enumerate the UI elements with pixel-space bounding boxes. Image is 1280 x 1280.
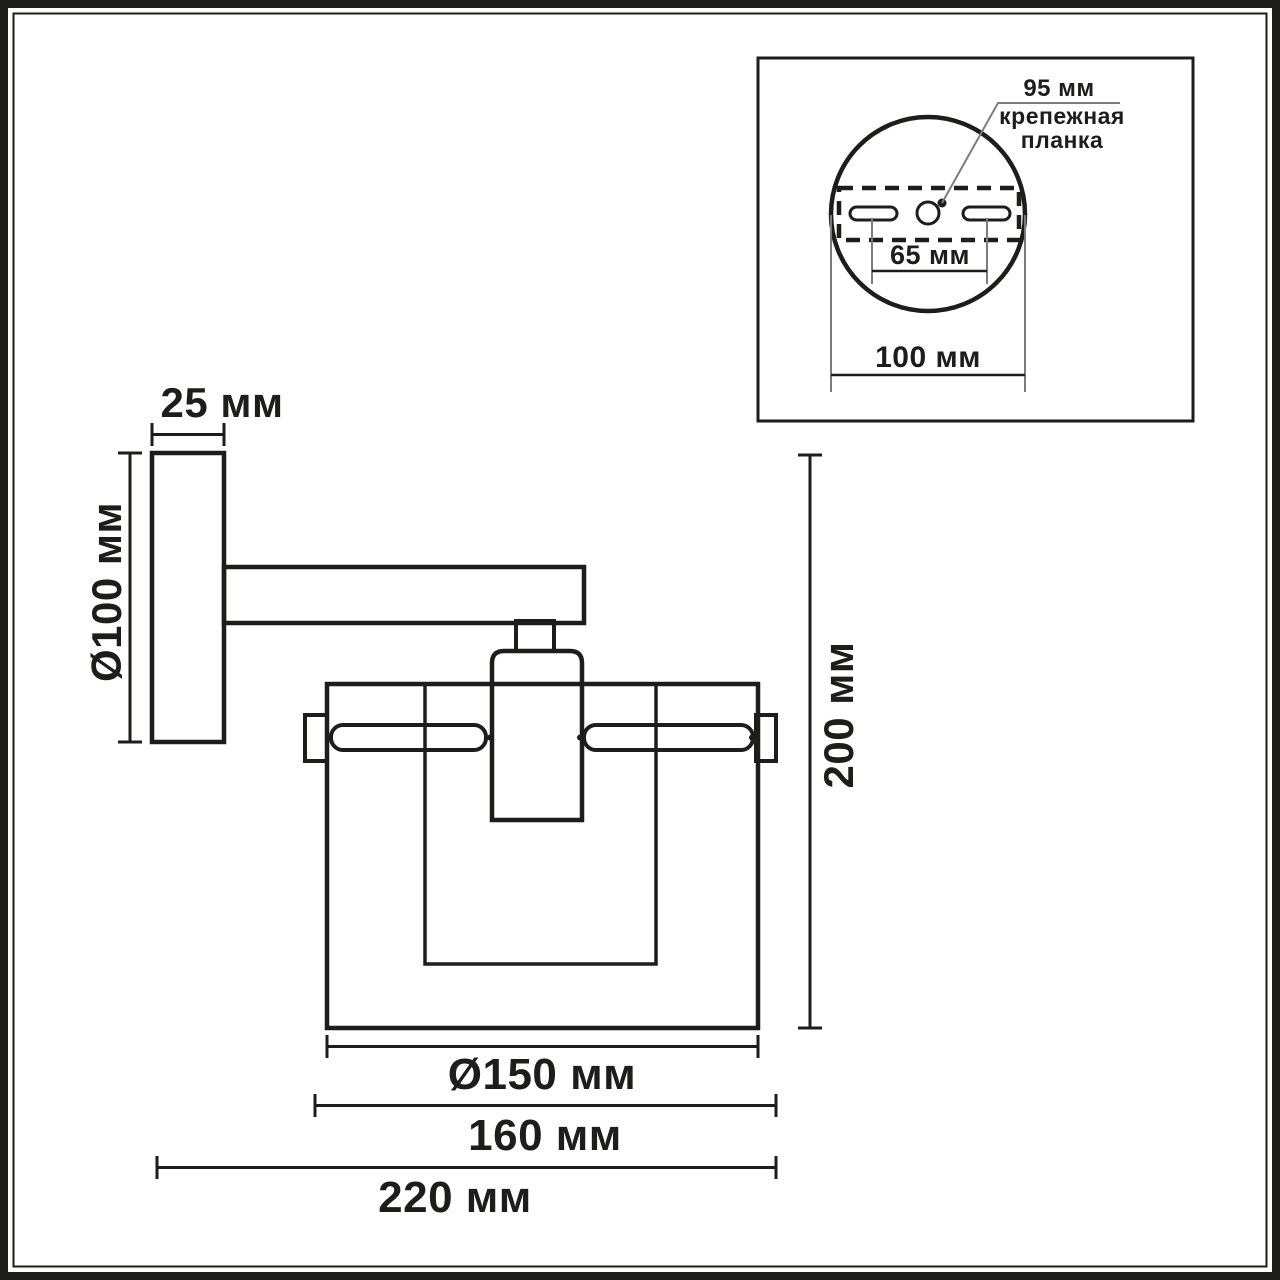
overall-height-label: 200 мм [815, 642, 862, 789]
rod-width-label: 160 мм [468, 1111, 622, 1160]
shade-diameter-label: Ø150 мм [448, 1050, 636, 1099]
rod-left-segment [331, 725, 486, 750]
rod-right-segment [584, 725, 753, 750]
glass-shade-outer [327, 684, 758, 1028]
rod-screw-outer-right [749, 735, 755, 741]
lamp-socket [492, 651, 582, 820]
mounting-arm [224, 567, 584, 623]
technical-drawing-page: 95 мм крепежная планка 65 мм 100 мм [0, 0, 1280, 1280]
wall-lamp-dimension-drawing: 95 мм крепежная планка 65 мм 100 мм [0, 0, 1280, 1280]
bracket-offset-label: 95 мм [1023, 75, 1094, 102]
overall-depth-label: 220 мм [378, 1173, 532, 1222]
base-diameter-label: 100 мм [875, 341, 981, 374]
plate-diameter-label: Ø100 мм [83, 502, 130, 682]
bracket-name-line2: планка [1021, 127, 1104, 153]
bracket-name-line1: крепежная [999, 103, 1125, 129]
frame-outer-border [4, 4, 1276, 1276]
wall-plate [152, 453, 224, 742]
screw-hole [917, 202, 939, 224]
frame-inner-border [14, 14, 1267, 1267]
rod-cap-left [305, 715, 327, 761]
mount-detail-inset: 95 мм крепежная планка 65 мм 100 мм [758, 58, 1193, 421]
plate-thickness-label: 25 мм [160, 379, 283, 426]
plate-thickness-dim-line [152, 423, 224, 446]
dimension-annotations: 25 мм Ø100 мм 200 мм Ø150 мм 160 мм 220 … [83, 379, 862, 1222]
rod-screw-outer-left [325, 735, 331, 741]
mount-base-circle [831, 117, 1025, 311]
mount-slot-left [850, 207, 897, 220]
socket-neck [516, 621, 554, 651]
mounting-bracket-dashed-outline [839, 188, 1019, 240]
slot-spacing-label: 65 мм [890, 240, 970, 270]
lamp-side-view [152, 453, 776, 1028]
